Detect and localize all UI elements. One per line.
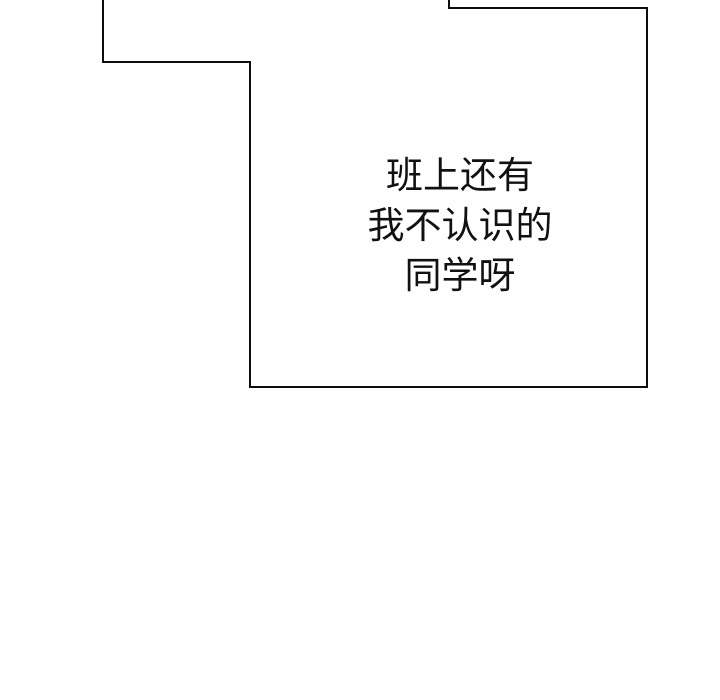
speech-line-2: 我不认识的	[310, 201, 610, 251]
speech-bubble-text: 班上还有 我不认识的 同学呀	[310, 151, 610, 301]
speech-line-3: 同学呀	[310, 251, 610, 301]
speech-line-1: 班上还有	[310, 151, 610, 201]
comic-panel: 班上还有 我不认识的 同学呀	[0, 0, 720, 700]
speech-bubble-outline	[0, 0, 720, 700]
